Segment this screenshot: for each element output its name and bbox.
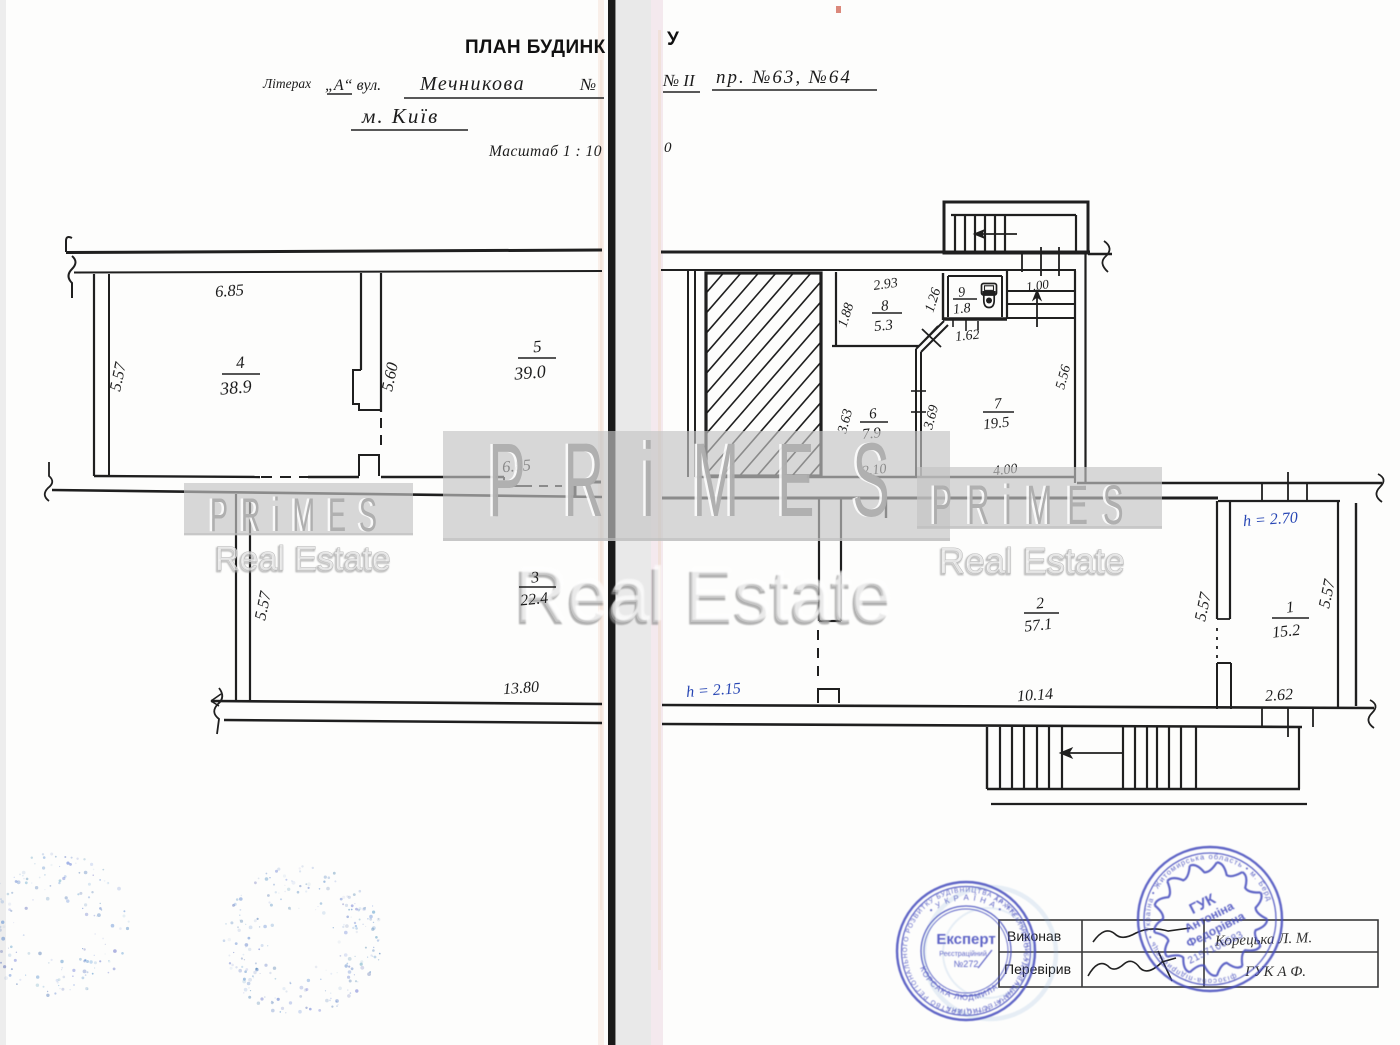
svg-text:1.00: 1.00 (1025, 276, 1050, 294)
svg-text:PRiMES: PRiMES (931, 475, 1138, 537)
svg-text:22.4: 22.4 (519, 590, 549, 610)
svg-text:1.62: 1.62 (954, 328, 980, 345)
svg-text:5.57: 5.57 (1190, 590, 1215, 623)
svg-text:Real Estate: Real Estate (939, 540, 1125, 581)
svg-text:1.8: 1.8 (952, 301, 971, 318)
svg-text:38.9: 38.9 (218, 376, 252, 399)
svg-text:6.85: 6.85 (214, 280, 244, 301)
svg-text:10.14: 10.14 (1016, 686, 1053, 705)
svg-text:Перевірив: Перевірив (1004, 961, 1071, 977)
svg-text:13.80: 13.80 (502, 679, 539, 698)
svg-text:1: 1 (1285, 599, 1295, 617)
svg-text:2.62: 2.62 (1264, 686, 1293, 705)
svg-text:h = 2.70: h = 2.70 (1242, 509, 1298, 530)
svg-text:2: 2 (1035, 595, 1045, 613)
svg-text:Real Estate: Real Estate (514, 554, 891, 639)
svg-text:1.26: 1.26 (923, 286, 945, 314)
svg-text:„А“ вул.: „А“ вул. (325, 77, 381, 94)
svg-text:h = 2.15: h = 2.15 (686, 680, 742, 701)
svg-text:PRiMES: PRiMES (488, 421, 928, 538)
svg-text:Експерт: Експерт (936, 931, 995, 948)
svg-text:№ ІІ: № ІІ (662, 71, 696, 90)
svg-text:5.3: 5.3 (873, 317, 893, 335)
svg-text:ПЛАН БУДИНК: ПЛАН БУДИНК (465, 37, 606, 58)
svg-text:м. Київ: м. Київ (361, 104, 439, 128)
svg-text:8: 8 (880, 298, 890, 315)
svg-text:Реєстраційний: Реєстраційний (939, 950, 987, 958)
svg-text:2.93: 2.93 (872, 276, 898, 294)
svg-text:№: № (579, 75, 596, 94)
svg-text:6: 6 (868, 406, 878, 423)
svg-text:15.2: 15.2 (1271, 622, 1301, 642)
svg-text:№272: №272 (954, 959, 979, 969)
svg-text:5.56: 5.56 (1053, 363, 1074, 391)
svg-text:5.57: 5.57 (1314, 577, 1339, 610)
svg-text:Літерах: Літерах (262, 76, 311, 91)
svg-text:7: 7 (993, 396, 1004, 413)
svg-text:0: 0 (664, 140, 672, 156)
svg-text:PRiMES: PRiMES (210, 489, 390, 542)
svg-text:Real Estate: Real Estate (215, 540, 391, 578)
svg-text:19.5: 19.5 (982, 414, 1010, 433)
svg-text:4: 4 (235, 353, 246, 373)
svg-text:5: 5 (532, 337, 542, 357)
svg-text:39.0: 39.0 (512, 361, 546, 384)
svg-text:пр. №63, №64: пр. №63, №64 (716, 67, 852, 88)
svg-text:Масштаб 1 : 10: Масштаб 1 : 10 (488, 143, 602, 160)
svg-text:У: У (667, 29, 679, 50)
svg-text:3: 3 (529, 569, 540, 587)
svg-text:Мечникова: Мечникова (419, 73, 525, 95)
svg-text:5.57: 5.57 (250, 589, 275, 622)
svg-text:57.1: 57.1 (1023, 616, 1053, 636)
svg-text:1.88: 1.88 (836, 301, 858, 329)
